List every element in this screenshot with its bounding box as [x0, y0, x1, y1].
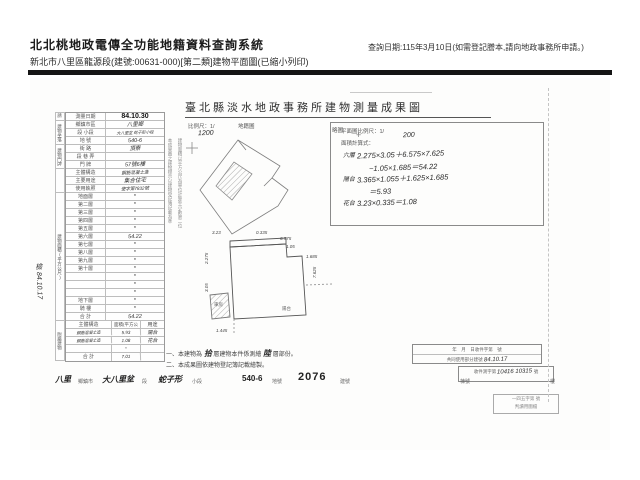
form-group-blank	[55, 168, 65, 193]
annex-structure	[66, 345, 112, 352]
row-label: 地 號	[66, 137, 106, 144]
parcel-outline	[200, 140, 288, 234]
row-value: *	[106, 217, 164, 224]
row-value: *	[106, 289, 164, 296]
table-row: 使用執照 使字第7832號	[66, 185, 164, 193]
survey-receipt-suffix: 號	[534, 369, 539, 374]
annex-total-value: 7.01	[112, 352, 141, 361]
footer-building-number-label: 建號	[340, 378, 350, 385]
survey-receipt-number: 10416 10315	[497, 367, 532, 377]
row-label	[66, 273, 106, 280]
floor-row: *	[66, 281, 164, 289]
row-label: 測量日期	[66, 113, 106, 120]
receipt-row: 共同使用部分建號 84.10.17	[413, 355, 541, 365]
row-value: *	[106, 193, 164, 200]
footer-township-label: 鄉鎮市	[78, 378, 93, 385]
calc-expression: 3.23×0.335＝1.08	[357, 196, 417, 209]
calc-lines: 六層 2.275×3.05＋6.575×7.625 −1.05×1.685＝54…	[343, 149, 448, 210]
row-label: 第十層	[66, 265, 106, 272]
footer-land-number-value: 540-6	[242, 374, 262, 383]
row-value: *	[106, 265, 164, 272]
annex-total-row: 合 計 7.01	[66, 353, 164, 361]
floor-row: *	[66, 273, 164, 281]
room-label-garage: 車房	[214, 302, 223, 308]
row-label: 第六層	[66, 233, 106, 240]
floor-row: 地下層*	[66, 297, 164, 305]
calc-box: 平面圖比例尺：1/ 200 面積計算式： 六層 2.275×3.05＋6.575…	[330, 122, 544, 226]
form-group-address: 建物門牌	[55, 144, 65, 169]
row-label: 段 巷 弄	[66, 153, 106, 160]
row-value: *	[106, 241, 164, 248]
floor-row: 第六層54.22	[66, 233, 164, 241]
row-value: *	[106, 225, 164, 232]
floor-plan-svg	[198, 233, 338, 338]
annex-row: 鋼筋混凝土造 5.93 陽台	[66, 329, 164, 337]
footer-township-value: 八里	[55, 374, 71, 386]
note-line-1: 一、本建物為 拾 層建物本件係測繪 陸 層部份。	[166, 348, 297, 359]
document-subtitle: 新北市八里區龍源段(建號:00631-000)[第二類]建物平面圖(已縮小列印)	[30, 55, 309, 68]
row-label: 第七層	[66, 241, 106, 248]
shared-use-label: 共同使用部分建號	[447, 357, 483, 362]
annex-area: *	[112, 345, 141, 352]
dim-left-bottom: 3.05	[204, 283, 209, 292]
row-label: 主體構造	[66, 169, 106, 176]
room-label-balcony: 陽台	[282, 306, 291, 312]
row-label: 第三層	[66, 209, 106, 216]
row-value: *	[106, 201, 164, 208]
receipt-row: 收件測字第 10416 10315 號	[459, 367, 553, 377]
cadastral-sketch-svg	[186, 128, 322, 238]
form-side-note-1: 本成果圖之建物標示以建物登記簿記載為準	[166, 138, 174, 368]
floor-row: 第三層*	[66, 209, 164, 217]
annex-use	[141, 345, 164, 352]
calc-line: 陽台 3.365×1.055＋1.625×1.685	[343, 173, 448, 186]
row-label: 第八層	[66, 249, 106, 256]
dim-strip-height: 0.335	[256, 230, 267, 235]
system-title: 北北桃地政電傳全功能地籍資料查詢系統	[30, 36, 264, 53]
row-label: 地面層	[66, 193, 106, 200]
dim-right: 7.625	[312, 267, 317, 278]
row-label: 第九層	[66, 257, 106, 264]
calc-name: 六層	[343, 151, 355, 162]
form-group-location: 建物坐落	[55, 120, 65, 145]
row-label: 第五層	[66, 225, 106, 232]
calc-line: 花台 3.23×0.335＝1.08	[343, 197, 448, 210]
annex-header-use: 用途	[141, 321, 164, 328]
survey-cross-icon	[186, 142, 198, 154]
row-label: 鄉鎮市區	[66, 121, 106, 128]
row-value: *	[106, 297, 164, 304]
floor-row: 第八層*	[66, 249, 164, 257]
calc-expression: ＝5.93	[369, 186, 391, 198]
plan-scale-label: 平面圖比例尺：1/	[341, 127, 384, 135]
annex-row: 鋼筋混凝土造 1.08 花台	[66, 337, 164, 345]
floor-total-value: 54.22	[106, 312, 164, 321]
floor-row: 第十層*	[66, 265, 164, 273]
plan-scale-value: 200	[403, 132, 415, 139]
receipt-box: 年 月 日收件字第 號 共同使用部分建號 84.10.17	[412, 344, 542, 364]
calc-expression: 2.275×3.05＋6.575×7.625	[357, 147, 445, 161]
annex-use: 花台	[141, 337, 164, 345]
survey-date-stamp: 84.10.30	[106, 113, 164, 120]
scan-fold-line	[548, 88, 549, 402]
floor-plan-outline	[210, 238, 332, 333]
annex-row: *	[66, 345, 164, 353]
note-handwritten-surveyed: 陸	[263, 348, 271, 359]
annex-area: 1.08	[112, 336, 141, 344]
floor-row: 地面層*	[66, 193, 164, 201]
query-date: 查詢日期:115年3月10日(如需登記謄本,請向地政事務所申請。)	[368, 42, 584, 53]
survey-receipt-label: 收件測字第	[474, 369, 497, 374]
scan-stamp-box: 一四五字第 號 判讀用圖檔	[493, 394, 559, 414]
query-system-page: 北北桃地政電傳全功能地籍資料查詢系統 新北市八里區龍源段(建號:00631-00…	[0, 0, 640, 480]
floor-row: 第四層*	[66, 217, 164, 225]
calc-formula-label: 面積計算式：	[341, 139, 374, 147]
annex-header-row: 主體構造 面積(平方公尺) 用途	[66, 321, 164, 329]
row-value: *	[106, 273, 164, 280]
annex-use	[141, 353, 164, 361]
dim-bottom: 1.445	[216, 328, 227, 333]
form-side-note-2: 建物面積以平方公尺為單位計算至小數第二位	[176, 138, 184, 368]
row-label: 合 計	[66, 313, 106, 320]
annex-header-area: 面積(平方公尺)	[112, 321, 141, 328]
note-line-2: 二、本成果圖依建物登記簿記載繪製。	[166, 360, 268, 369]
dim-notch-height: 1.685	[306, 254, 317, 259]
note-text: 層部份。	[273, 352, 297, 358]
row-value: *	[106, 257, 164, 264]
footer-subsection-value: 蛇子形	[158, 374, 182, 386]
annex-total-label: 合 計	[66, 353, 112, 361]
footer-block-label: 棟號	[460, 378, 470, 385]
floor-row: 第七層*	[66, 241, 164, 249]
footer-section-label: 段	[142, 378, 147, 385]
row-value: *	[106, 281, 164, 288]
row-label: 使用執照	[66, 185, 106, 192]
row-label: 段 小段	[66, 129, 106, 136]
floor-total-row: 合 計54.22	[66, 313, 164, 321]
floor-row: *	[66, 289, 164, 297]
footer-section-value: 大八里坌	[102, 373, 134, 385]
header-divider	[28, 70, 612, 75]
row-label: 第二層	[66, 201, 106, 208]
survey-form-table: 測量日期 84.10.30 鄉鎮市區 八里鄉 段 小段 大八里坌 蛇子形小段 地…	[65, 112, 165, 362]
calc-name: 花台	[343, 199, 355, 210]
footer-floor-label: 樓	[550, 378, 555, 385]
scanned-document: 臺北縣淡水地政事務所建物測量成果圖 申請人 建物坐落 建物門牌 建物面積(平方公…	[30, 78, 610, 450]
annex-use: 陽台	[141, 329, 164, 337]
floor-row: 第二層*	[66, 201, 164, 209]
floor-row: 第九層*	[66, 257, 164, 265]
scan-artifact-line	[350, 92, 432, 93]
row-label	[66, 281, 106, 288]
note-text: 一、本建物為	[166, 352, 202, 358]
dim-left-top: 2.275	[204, 253, 209, 264]
row-label: 地下層	[66, 297, 106, 304]
form-group-building-area: 建物面積(平方公尺)	[55, 192, 65, 321]
row-label: 門 牌	[66, 161, 106, 168]
footer-land-number-label: 地號	[272, 378, 282, 385]
annex-header-structure: 主體構造	[66, 321, 112, 328]
row-value: 使字第7832號	[106, 184, 164, 193]
row-label	[66, 289, 106, 296]
row-value: *	[106, 209, 164, 216]
dim-strip-width: 3.23	[212, 230, 221, 235]
row-label: 第四層	[66, 217, 106, 224]
row-label: 騎 樓	[66, 305, 106, 312]
form-group-annex: 附屬建物	[55, 320, 65, 361]
annex-structure: 鋼筋混凝土造	[66, 336, 112, 345]
document-title: 臺北縣淡水地政事務所建物測量成果圖	[185, 99, 491, 118]
footer-building-number-value: 2076	[298, 371, 326, 383]
dim-top: 6.575	[280, 236, 291, 241]
note-handwritten-floors: 拾	[203, 348, 211, 359]
footer-subsection-label: 小段	[192, 378, 202, 385]
dim-notch-width: 1.05	[286, 244, 295, 249]
row-value: *	[106, 305, 164, 312]
row-value: *	[106, 249, 164, 256]
calc-name: 陽台	[343, 175, 355, 186]
note-text: 層建物本件係測繪	[213, 352, 261, 358]
margin-handwritten-note: 檢 84.10.17	[33, 263, 46, 343]
row-label: 街 路	[66, 145, 106, 152]
receipt-row: 年 月 日收件字第 號	[413, 345, 541, 355]
shared-use-value: 84.10.17	[484, 356, 508, 365]
stamp-line: 判讀用圖檔	[494, 403, 558, 411]
annex-area: 5.93	[112, 328, 141, 336]
survey-receipt-box: 收件測字第 10416 10315 號	[458, 366, 554, 382]
calc-expression: 3.365×1.055＋1.625×1.685	[357, 171, 449, 185]
floor-area-value: 54.22	[106, 232, 164, 241]
calc-line: ＝5.93	[343, 186, 448, 197]
row-label: 主要用途	[66, 177, 106, 184]
